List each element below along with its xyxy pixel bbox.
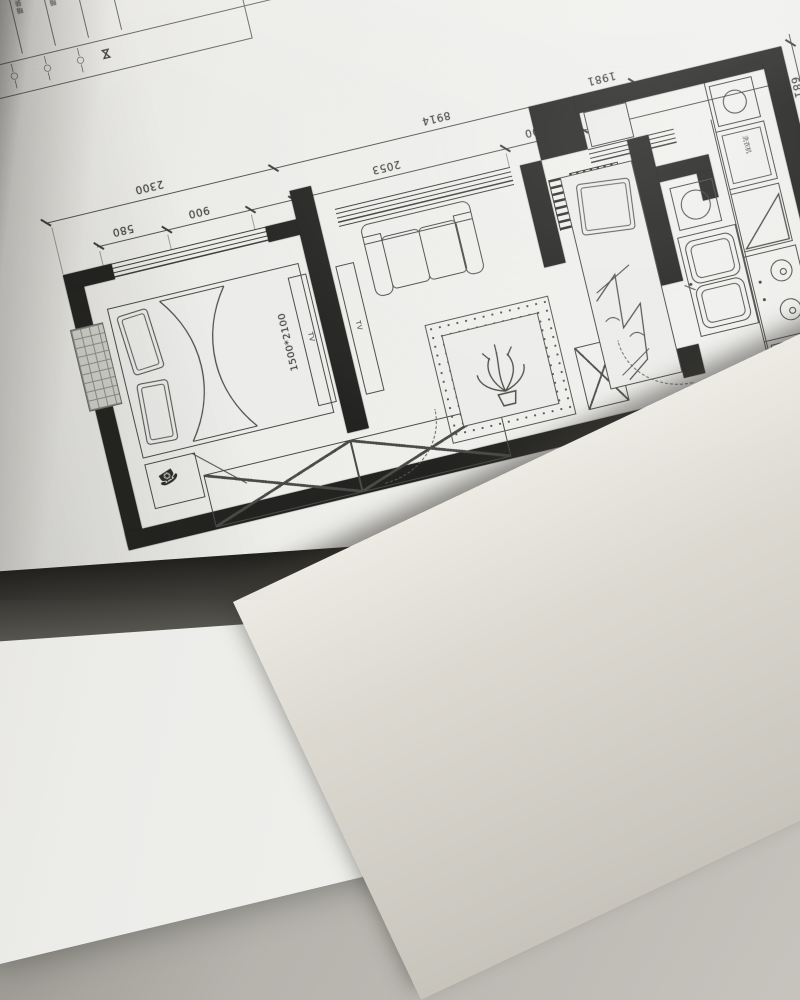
distribution-box-symbol-icon: ⋈ — [98, 47, 114, 62]
legend-text: 暗装单极开关 — [6, 0, 44, 15]
dim-2300: 2300 — [134, 177, 165, 195]
dim-580: 580 — [111, 222, 135, 239]
appliance-circle — [720, 87, 749, 116]
extension-line — [251, 214, 255, 229]
bedroom-window — [111, 226, 270, 279]
extension-line — [99, 251, 103, 266]
knob-dot — [763, 298, 767, 302]
extension-line — [51, 227, 63, 274]
faucet-dot — [689, 283, 693, 287]
knob-dot — [758, 280, 762, 284]
wardrobe-section — [203, 440, 363, 528]
legend-border — [222, 0, 253, 39]
rug — [424, 296, 576, 444]
legend-table: 吸顶灯 防水吸顶灯 单头射灯 暗装单极开关 暗装五孔插座 配电箱 —○— —○—… — [0, 0, 253, 116]
corner-nightstand: ☎ — [144, 452, 205, 509]
photo-of-floor-plan: { "legend": { "rows": [ {"label": "吸顶灯",… — [0, 0, 800, 600]
rug-inner — [441, 312, 559, 427]
potted-plant-icon — [443, 314, 559, 426]
legend-text: 单头射灯 — [0, 0, 7, 8]
dim-8914: 8914 — [420, 109, 451, 127]
dim-1981: 1981 — [586, 69, 617, 87]
tv-label: TV — [354, 320, 364, 332]
socket-symbol-icon: —○— — [72, 47, 88, 74]
wall — [63, 264, 115, 291]
dim-900: 900 — [187, 203, 211, 220]
legend-text: 暗装五孔插座 — [39, 0, 77, 7]
switch-symbol-icon: —○— — [39, 55, 55, 82]
burner-icon — [768, 257, 795, 284]
toilet-bowl — [678, 186, 714, 222]
lamp-symbol-icon: —○— — [6, 62, 22, 89]
sink-bowl — [694, 276, 753, 330]
kitchen-appliance — [709, 76, 762, 127]
gas-stove — [743, 244, 800, 342]
extension-line — [167, 235, 171, 250]
telephone-icon: ☎ — [153, 462, 182, 490]
burner-icon — [778, 296, 800, 323]
tv-label: TV — [306, 331, 316, 343]
